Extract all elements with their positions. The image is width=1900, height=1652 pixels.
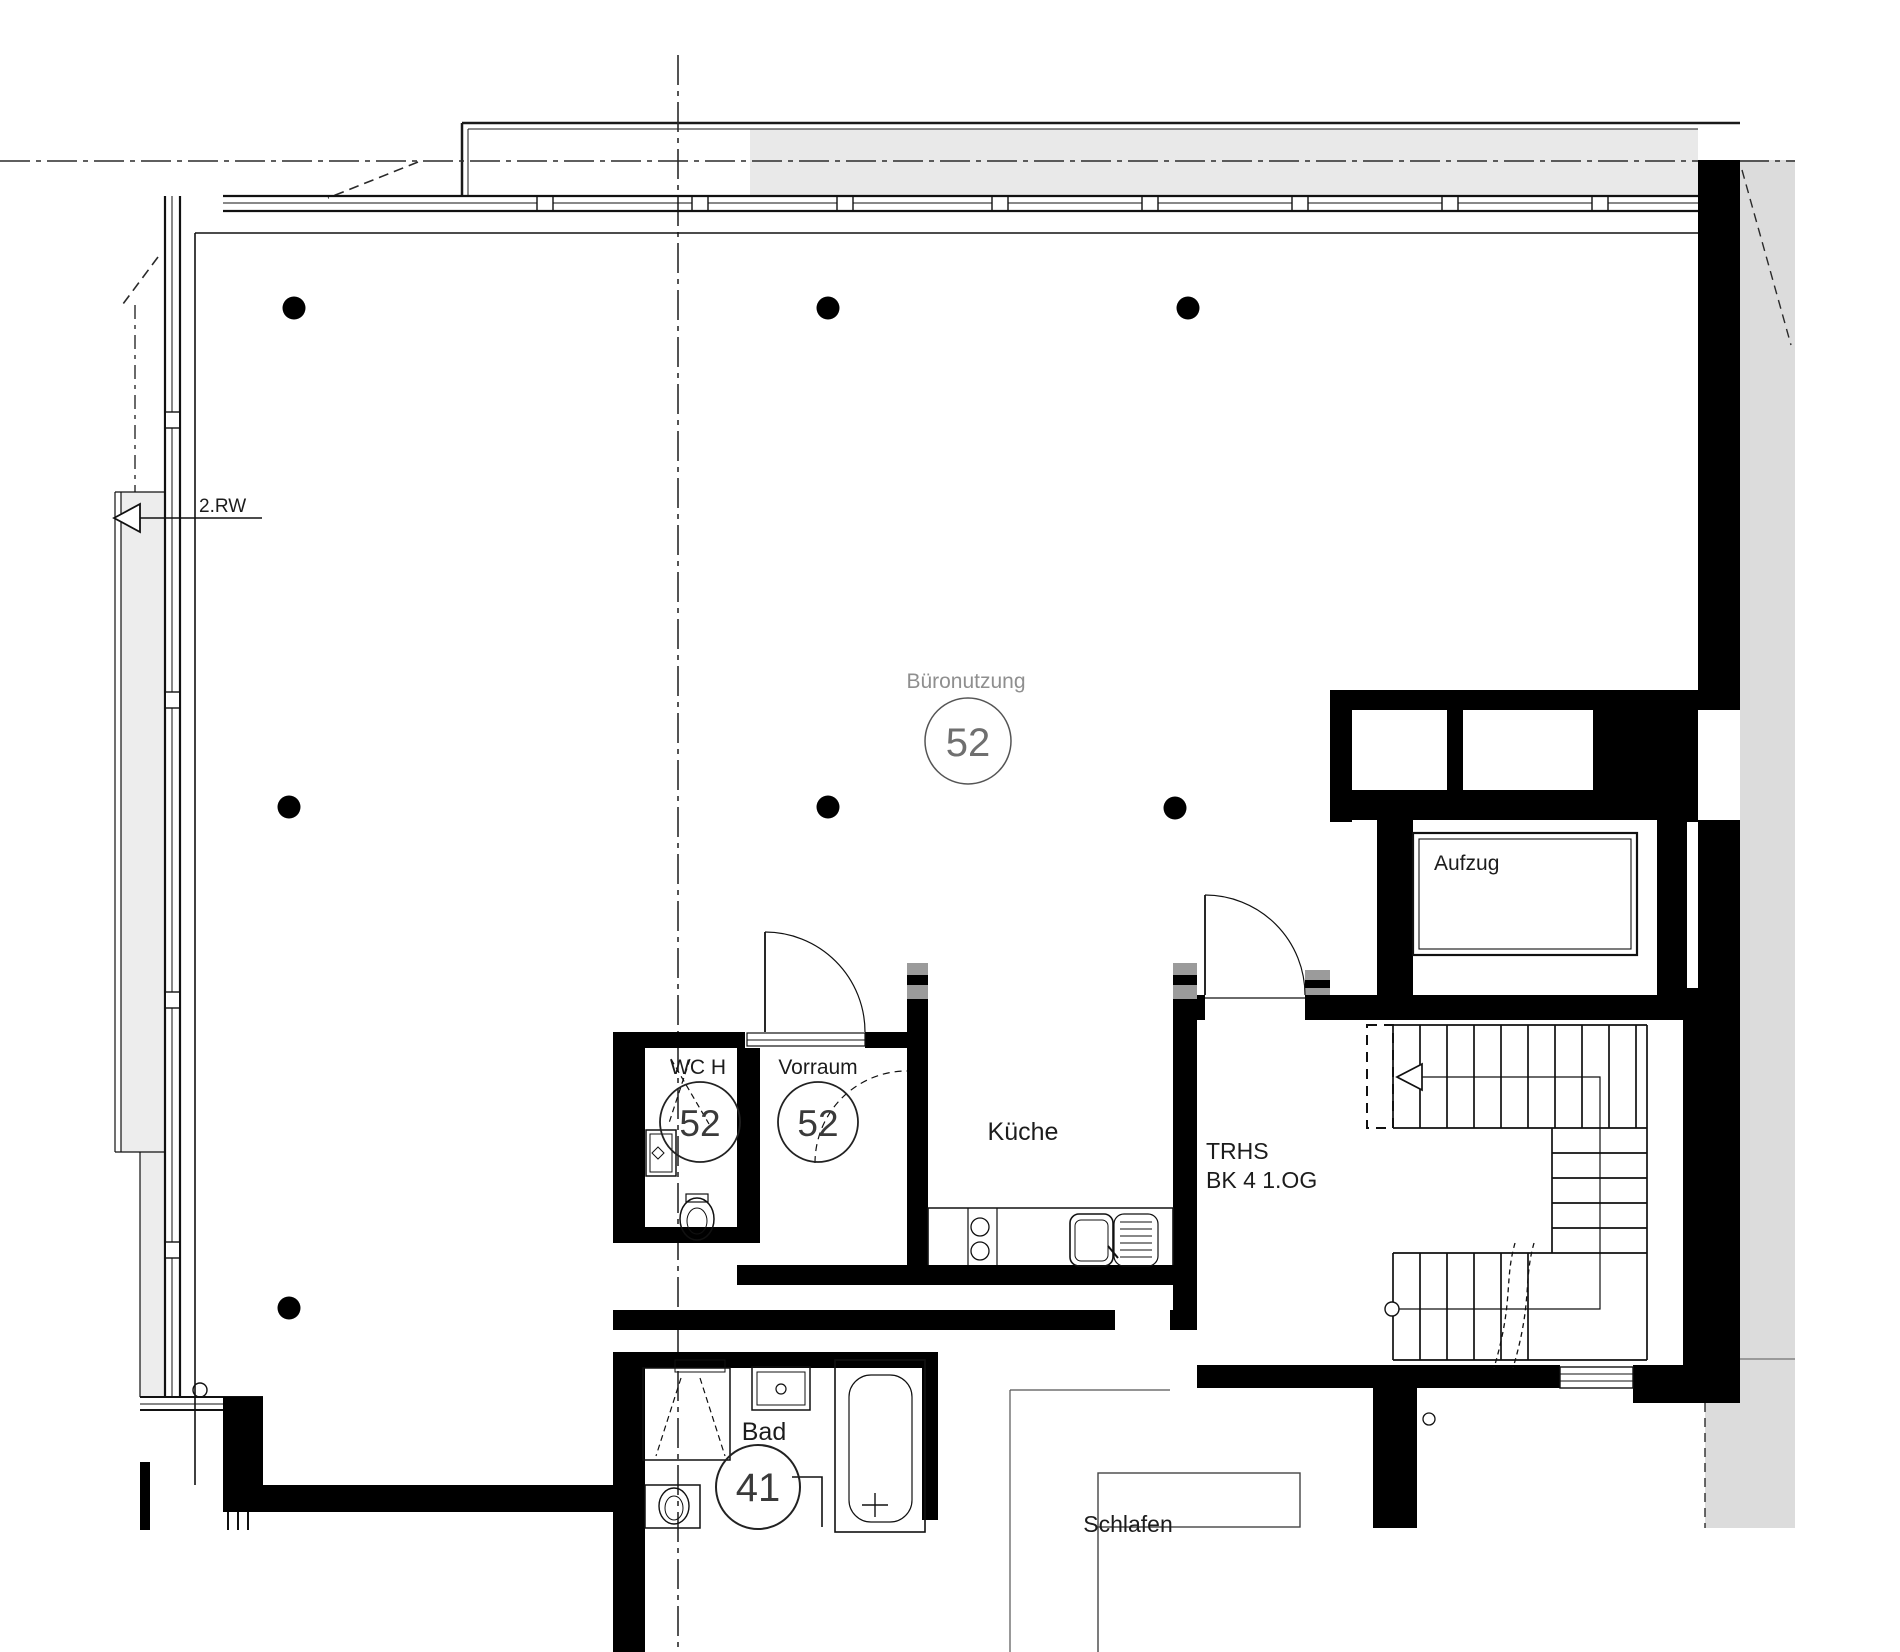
wall xyxy=(737,1265,1173,1285)
centerlines xyxy=(0,55,1795,1652)
right-outside-strip-lower xyxy=(1705,1403,1795,1528)
wall xyxy=(140,1462,150,1530)
toilet-icon xyxy=(659,1488,689,1524)
floor-plan-drawing: 2.RW xyxy=(0,0,1900,1652)
wall xyxy=(1197,1365,1560,1388)
stair-landing-dashed xyxy=(1367,1025,1393,1128)
column-dot xyxy=(817,796,840,819)
wall-ticks xyxy=(228,1512,248,1530)
left-bay-fill xyxy=(121,492,165,1152)
wall xyxy=(1633,1365,1683,1403)
door-swing-arc xyxy=(765,932,865,1032)
boundary-diagonal-2 xyxy=(120,257,158,308)
stair-walkline-start xyxy=(1385,1302,1399,1316)
door-swing-arc xyxy=(1205,895,1305,995)
room-number-buero: 52 xyxy=(946,721,991,765)
room-number-vorraum: 52 xyxy=(797,1103,838,1144)
bathroom-fixtures xyxy=(643,1360,925,1532)
wall xyxy=(1377,820,1413,1020)
wall xyxy=(1447,710,1463,790)
wall xyxy=(865,1032,910,1048)
room-label-schlafen: Schlafen xyxy=(1083,1511,1173,1537)
floor-plan-page: 2.RW xyxy=(0,0,1900,1652)
room-label-buero: Büronutzung xyxy=(906,670,1025,693)
column-dot xyxy=(283,297,306,320)
stair-break-line xyxy=(1513,1243,1534,1368)
shaft-slot xyxy=(1687,822,1698,988)
wall xyxy=(1305,995,1740,1020)
valve-icon xyxy=(652,1147,664,1159)
stair-window xyxy=(1560,1367,1633,1388)
wall xyxy=(1330,690,1740,710)
wall xyxy=(613,1310,1115,1330)
stair-treads-bottom xyxy=(1420,1253,1528,1360)
window-bands xyxy=(115,196,1698,1485)
hob-burner-icon xyxy=(971,1242,989,1260)
room-label-wc: WC H xyxy=(670,1056,726,1079)
washbasin-icon xyxy=(752,1367,810,1410)
wall xyxy=(613,1352,645,1652)
wall xyxy=(1373,1388,1417,1528)
faucet-icon xyxy=(776,1384,786,1394)
hob-burner-icon xyxy=(971,1218,989,1236)
boundary-diagonal-1 xyxy=(328,162,418,198)
wall xyxy=(1698,160,1740,690)
room-label-bad: Bad xyxy=(742,1418,786,1446)
room-label-aufzug: Aufzug xyxy=(1434,852,1499,875)
wall xyxy=(1683,1020,1740,1403)
left-lower-bay-fill xyxy=(140,1152,165,1397)
rw-label: 2.RW xyxy=(199,496,246,517)
bedroom xyxy=(1010,1390,1435,1652)
column-dot xyxy=(817,297,840,320)
right-outside-strip xyxy=(1740,160,1795,1403)
room-number-bad: 41 xyxy=(736,1466,781,1510)
wall xyxy=(1173,999,1197,1330)
room-number-wc: 52 xyxy=(679,1103,720,1144)
wall xyxy=(1593,710,1698,790)
wall xyxy=(263,1485,613,1512)
stair-direction-arrow-icon xyxy=(1397,1064,1422,1090)
room-label-trhs-sub: BK 4 1.OG xyxy=(1206,1167,1317,1193)
wall xyxy=(907,1048,928,1285)
walls xyxy=(140,160,1740,1652)
wall xyxy=(737,1048,760,1228)
kitchen-counter xyxy=(928,1208,1173,1266)
column-dot xyxy=(278,796,301,819)
staircase xyxy=(1367,1025,1647,1368)
column-dot xyxy=(1177,297,1200,320)
pipe-symbol xyxy=(1423,1413,1435,1425)
room-label-vorraum: Vorraum xyxy=(778,1056,857,1079)
stair-break-line xyxy=(1494,1243,1515,1368)
wall xyxy=(1170,1310,1197,1330)
wall xyxy=(1657,820,1740,995)
wall xyxy=(613,1032,745,1048)
room-label-kueche: Küche xyxy=(988,1118,1059,1146)
wall xyxy=(907,999,928,1048)
wall xyxy=(613,1048,645,1243)
wall xyxy=(223,1397,263,1512)
wall xyxy=(1197,995,1205,1020)
column-dot xyxy=(278,1297,301,1320)
room-label-trhs: TRHS xyxy=(1206,1138,1269,1164)
wc-fixtures xyxy=(646,1059,714,1240)
wall xyxy=(1330,790,1698,820)
column-dot xyxy=(1164,797,1187,820)
balcony-slab-fill xyxy=(750,129,1698,195)
shower-icon xyxy=(643,1368,730,1460)
stair-walkline xyxy=(1399,1077,1600,1309)
wall-end-caps xyxy=(907,963,1330,999)
doors xyxy=(747,895,1305,1527)
